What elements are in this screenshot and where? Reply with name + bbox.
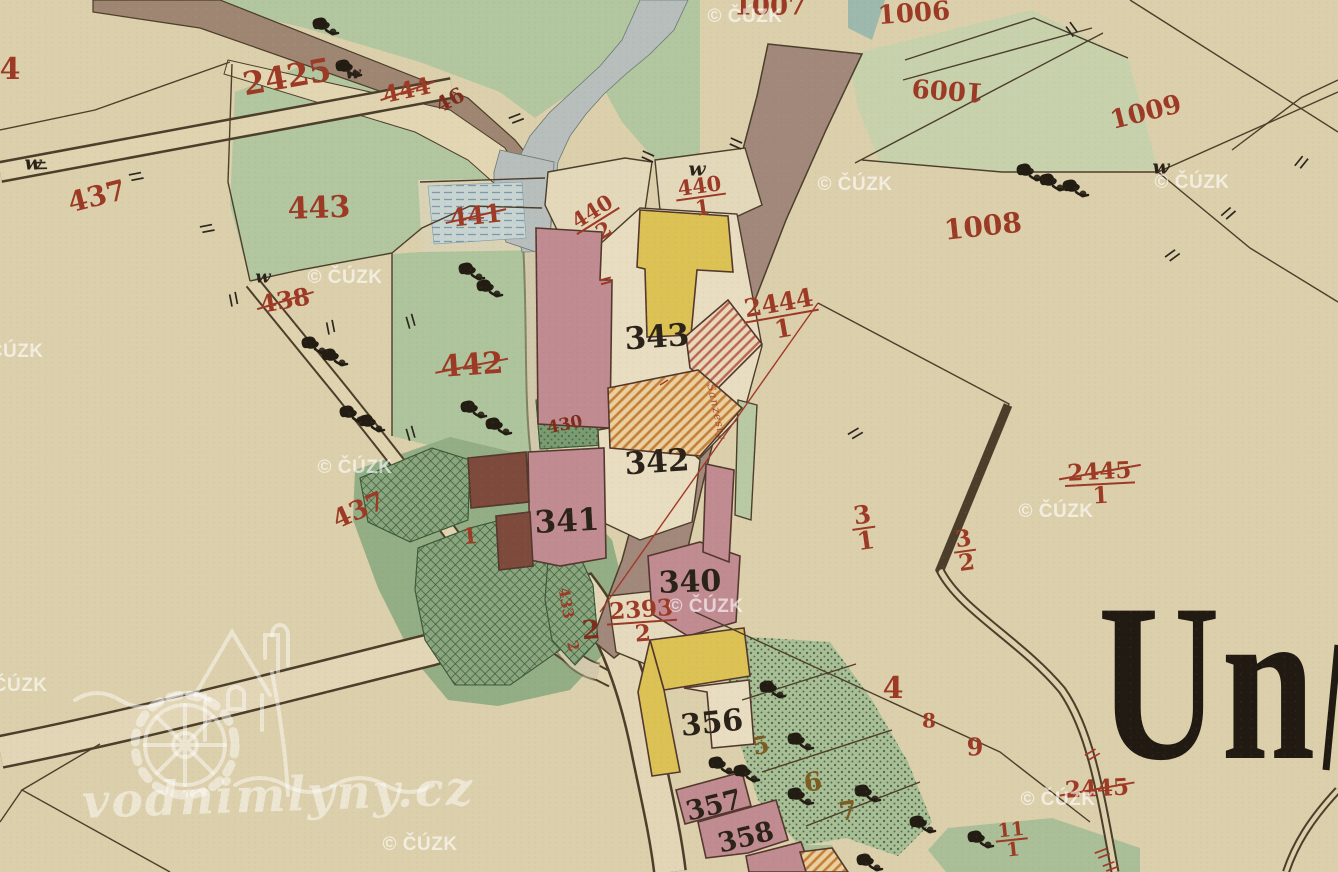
parcel-label: w [1152, 158, 1169, 177]
settlement-name-label: Un [1098, 570, 1317, 795]
building-pink-mill [536, 228, 612, 428]
cadastral-map-viewport[interactable]: 4242544446437443441440244014384424304371… [0, 0, 1338, 872]
parcel-label: w [688, 160, 705, 179]
parcel-label-fraction: 24451 [1064, 459, 1136, 508]
parcel-label-fraction: 23932 [605, 597, 678, 647]
parcel-label: 9 [967, 737, 984, 760]
parcel-label: 4 [883, 675, 904, 704]
parcel-label: 343 [624, 321, 691, 355]
parcel-label: 8 [922, 712, 936, 731]
parcel-label: 4 [0, 56, 20, 85]
parcel-label: 356 [679, 707, 744, 742]
building-roadside [703, 464, 734, 562]
parcel-label: 441 [449, 201, 503, 230]
parcel-label: 1 [461, 526, 478, 548]
parcel-label: 7 [837, 799, 858, 826]
parcel-label: 442 [440, 350, 504, 383]
parcel-label: 6 [802, 770, 823, 797]
parcel-label: 433 [556, 586, 575, 619]
parcel-label: 1006 [877, 0, 951, 29]
building-dark-1 [468, 452, 529, 508]
parcel-label: 342 [624, 446, 691, 480]
parcel-label: 2 [581, 618, 601, 644]
parcel-label-fraction: 111 [994, 819, 1030, 860]
parcel-label: w [345, 64, 361, 81]
parcel-label: 1007 [734, 0, 806, 19]
parcel-label: 443 [287, 194, 351, 225]
parcel-label: 1009 [911, 74, 985, 104]
building-dark-2 [496, 512, 533, 570]
parcel-label: w [24, 154, 41, 173]
parcel-label: 341 [534, 506, 600, 539]
parcel-label: 340 [658, 568, 722, 599]
parcel-label: w [255, 268, 271, 285]
parcel-label: 1008 [943, 210, 1023, 245]
